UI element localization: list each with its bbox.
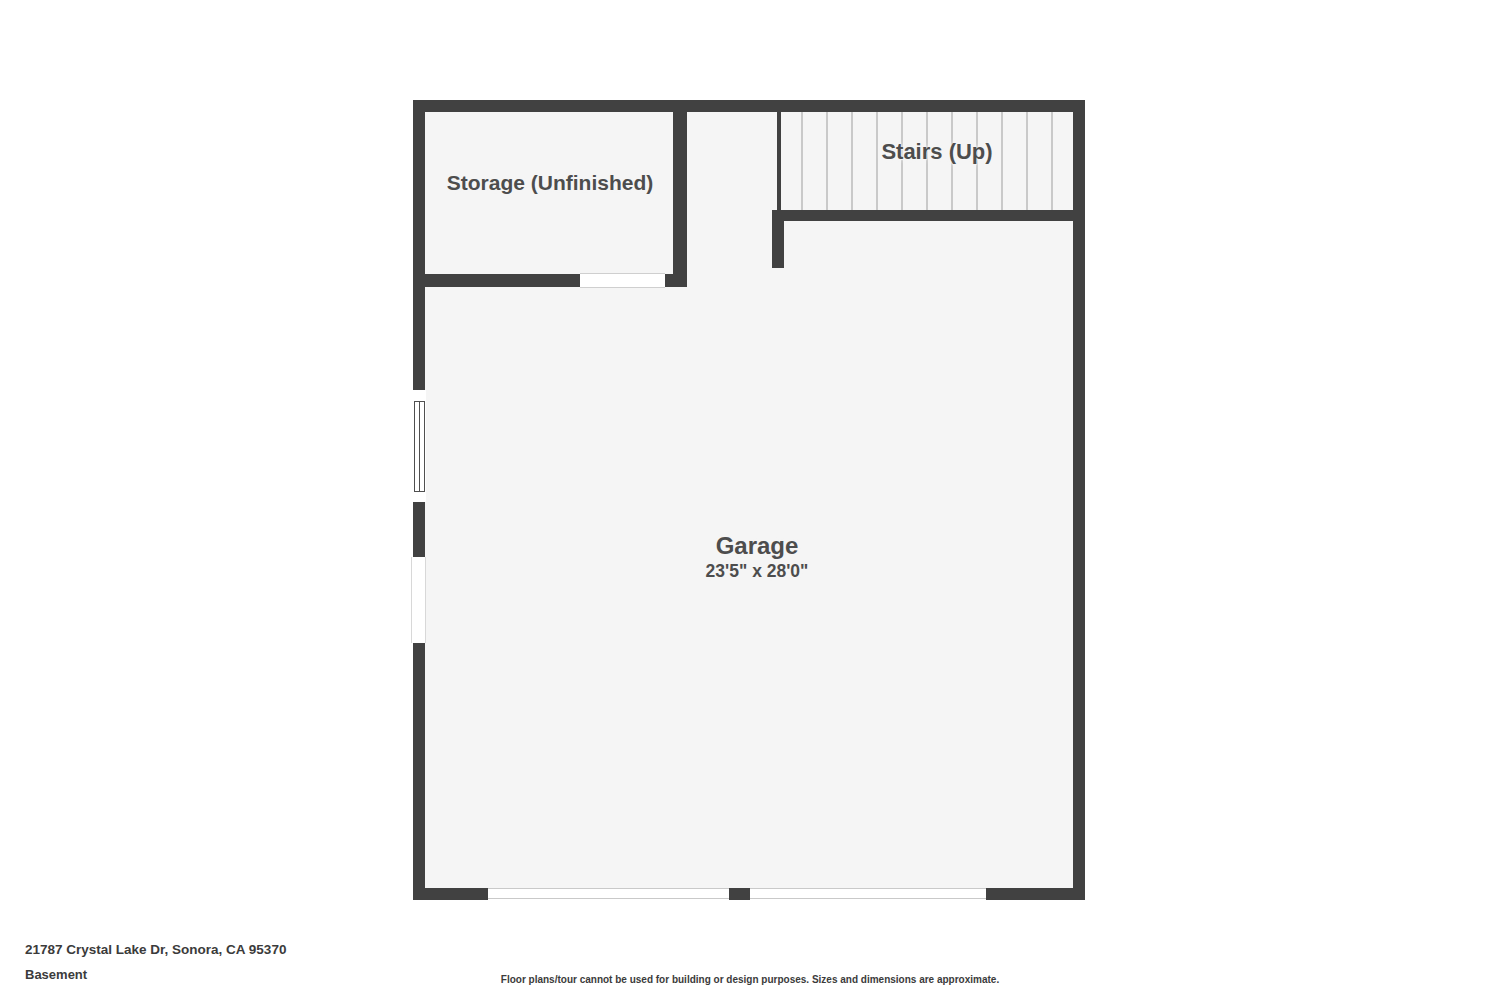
- room-dimensions-garage: 23'5" x 28'0": [706, 561, 809, 582]
- room-label-storage: Storage (Unfinished): [447, 171, 654, 195]
- stair-tread-line: [826, 112, 828, 210]
- room-label-stairs: Stairs (Up): [881, 139, 992, 165]
- left-wall-door-opening: [411, 557, 426, 643]
- floorplan-page: Storage (Unfinished) Stairs (Up) Garage …: [0, 0, 1500, 1000]
- stairs-bottom-wall: [772, 210, 1085, 221]
- stair-tread-line: [1026, 112, 1028, 210]
- stair-tread-line: [1051, 112, 1053, 210]
- storage-right-wall: [673, 112, 687, 287]
- storage-door-opening: [580, 273, 665, 288]
- property-address: 21787 Crystal Lake Dr, Sonora, CA 95370: [25, 942, 286, 957]
- stair-tread-line: [1001, 112, 1003, 210]
- stairs-wall-stub: [772, 221, 784, 268]
- stair-tread-line: [851, 112, 853, 210]
- stair-tread-line: [801, 112, 803, 210]
- stairs-left-edge: [777, 112, 781, 211]
- garage-door-opening-2: [750, 888, 986, 900]
- left-wall-window: [411, 390, 426, 502]
- room-label-garage: Garage: [716, 532, 799, 560]
- window-icon: [414, 401, 425, 492]
- garage-door-opening-1: [488, 888, 729, 900]
- disclaimer-text: Floor plans/tour cannot be used for buil…: [0, 974, 1500, 985]
- stair-tread-line: [876, 112, 878, 210]
